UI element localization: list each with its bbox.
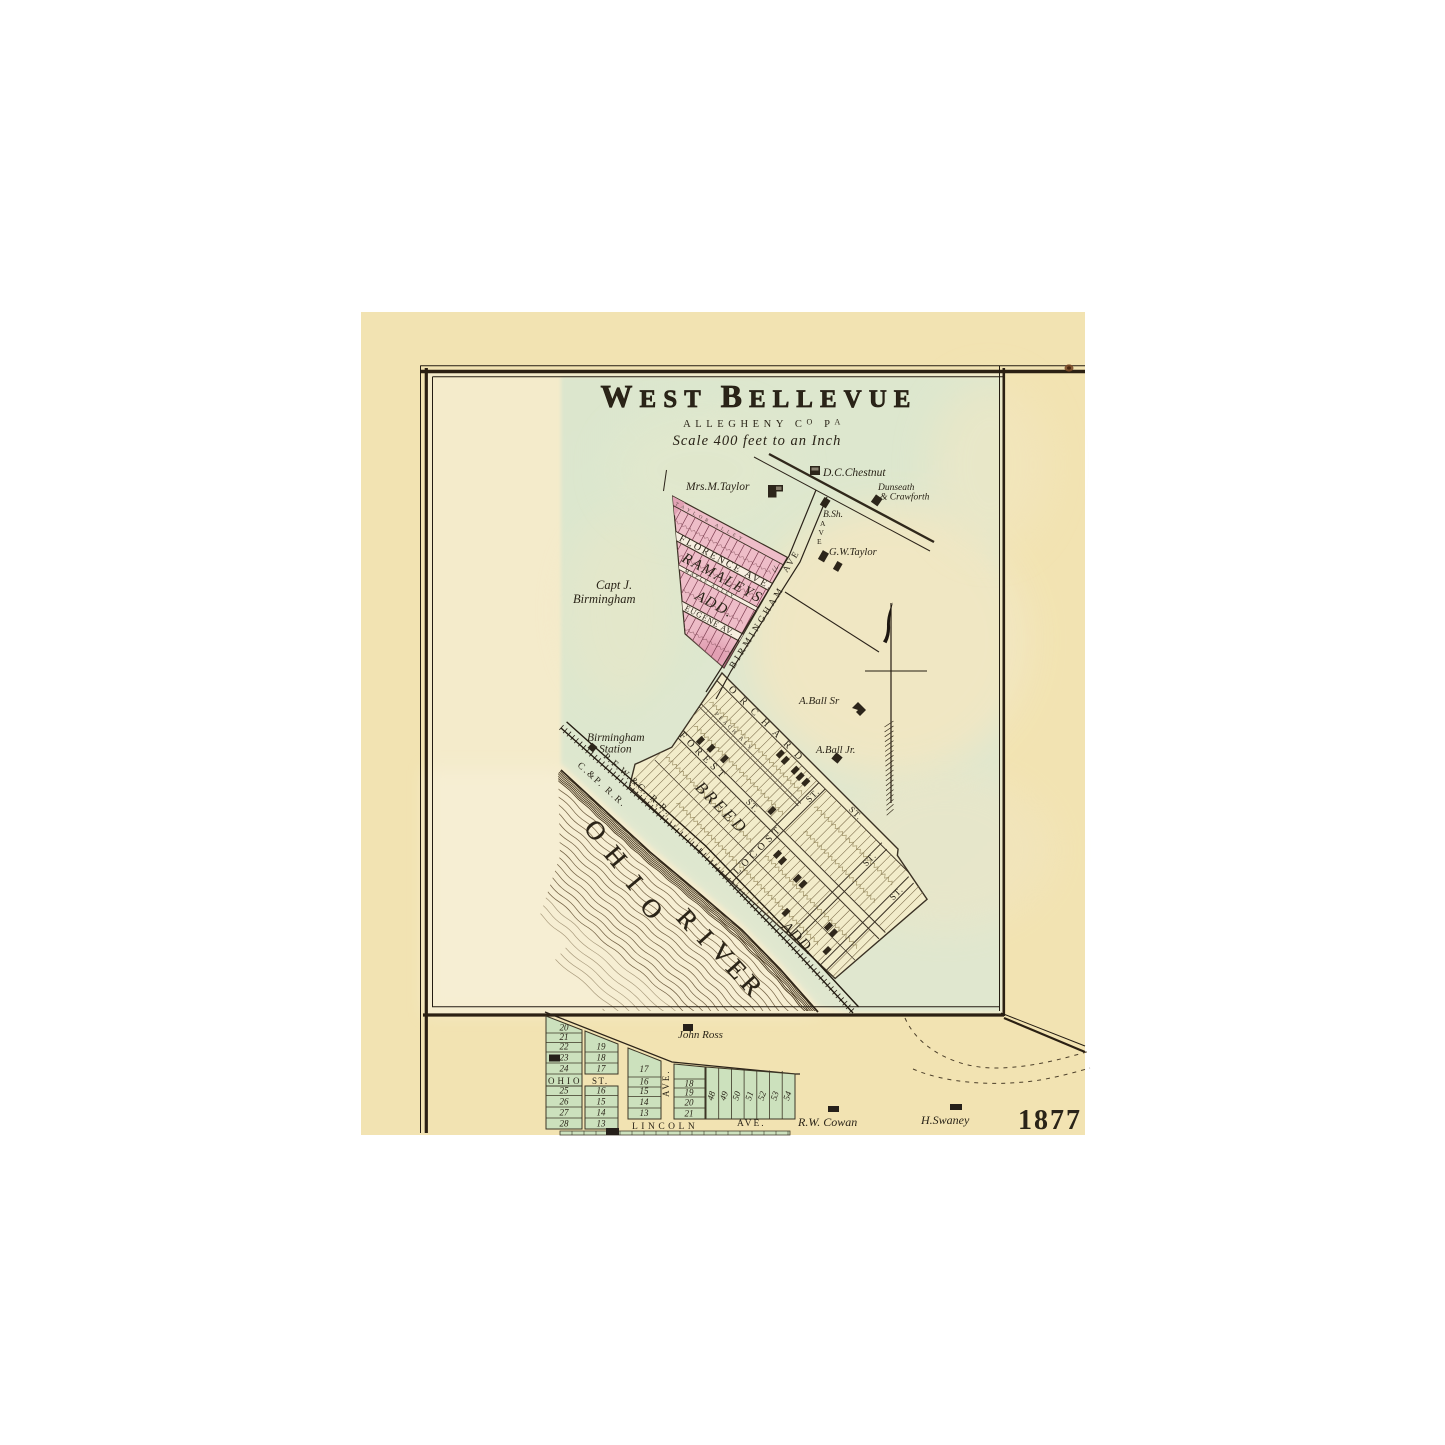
- svg-text:A.Ball Jr.: A.Ball Jr.: [815, 745, 855, 756]
- svg-text:23: 23: [560, 1053, 570, 1063]
- svg-text:ST.: ST.: [592, 1076, 609, 1086]
- svg-text:Station: Station: [599, 744, 632, 756]
- svg-text:13: 13: [597, 1119, 607, 1129]
- svg-text:Scale 400 feet to an Inch: Scale 400 feet to an Inch: [673, 433, 842, 449]
- svg-text:14: 14: [640, 1097, 650, 1107]
- svg-text:17: 17: [640, 1064, 650, 1074]
- svg-text:ALLEGHENY CO PA: ALLEGHENY CO PA: [683, 418, 845, 431]
- svg-text:19: 19: [685, 1088, 695, 1098]
- svg-text:20: 20: [685, 1098, 695, 1108]
- svg-text:19: 19: [597, 1042, 607, 1052]
- svg-text:21: 21: [685, 1109, 694, 1119]
- svg-text:1877: 1877: [1018, 1105, 1082, 1136]
- svg-text:15: 15: [597, 1097, 607, 1107]
- svg-text:G.W.Taylor: G.W.Taylor: [829, 547, 878, 558]
- svg-text:John Ross: John Ross: [678, 1029, 723, 1041]
- svg-text:13: 13: [640, 1108, 650, 1118]
- svg-text:25: 25: [560, 1086, 570, 1096]
- svg-text:AVE.: AVE.: [661, 1069, 671, 1097]
- svg-text:Birmingham: Birmingham: [573, 592, 636, 606]
- svg-text:H.Swaney: H.Swaney: [920, 1113, 970, 1127]
- svg-text:28: 28: [560, 1119, 570, 1129]
- svg-text:V: V: [819, 528, 825, 537]
- svg-text:16: 16: [640, 1077, 650, 1087]
- svg-text:& Crawforth: & Crawforth: [880, 492, 930, 503]
- svg-text:LINCOLN: LINCOLN: [632, 1122, 698, 1132]
- svg-text:A: A: [820, 519, 826, 528]
- svg-text:OHIO: OHIO: [548, 1076, 583, 1086]
- svg-text:D.C.Chestnut: D.C.Chestnut: [822, 467, 886, 479]
- svg-text:20: 20: [560, 1023, 570, 1033]
- svg-text:Capt J.: Capt J.: [596, 578, 632, 592]
- svg-text:15: 15: [640, 1086, 650, 1096]
- svg-text:E: E: [817, 537, 822, 546]
- svg-text:A.Ball Sr: A.Ball Sr: [798, 695, 840, 707]
- svg-text:17: 17: [597, 1064, 607, 1074]
- svg-text:AVE.: AVE.: [737, 1119, 766, 1129]
- svg-text:Birmingham: Birmingham: [587, 732, 645, 744]
- svg-text:27: 27: [560, 1108, 570, 1118]
- svg-text:26: 26: [560, 1097, 570, 1107]
- svg-text:Mrs.M.Taylor: Mrs.M.Taylor: [685, 481, 750, 493]
- svg-text:24: 24: [560, 1064, 570, 1074]
- svg-text:B.Sh.: B.Sh.: [823, 510, 843, 520]
- svg-text:16: 16: [597, 1086, 607, 1096]
- svg-text:14: 14: [597, 1108, 607, 1118]
- svg-text:21: 21: [560, 1032, 569, 1042]
- svg-text:R.W. Cowan: R.W. Cowan: [797, 1115, 857, 1129]
- svg-text:22: 22: [560, 1042, 570, 1052]
- svg-text:18: 18: [597, 1053, 607, 1063]
- svg-text:Dunseath: Dunseath: [877, 483, 915, 493]
